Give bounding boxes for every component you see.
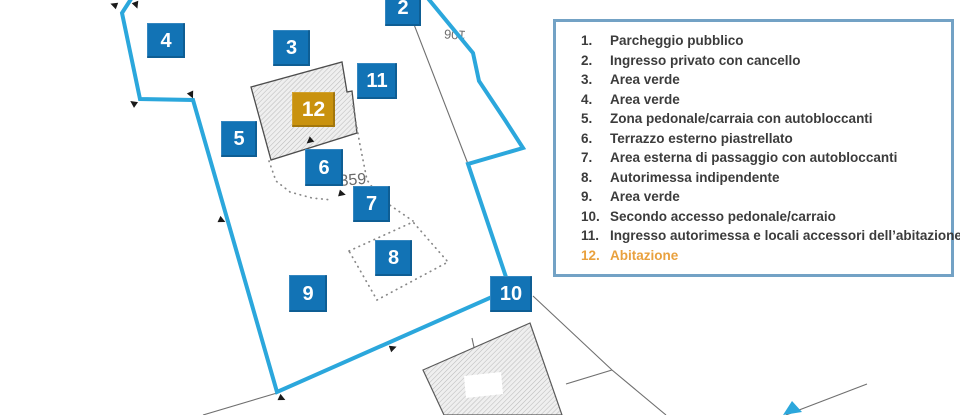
- property-boundary-line: [122, 0, 523, 392]
- legend-panel: 1.Parcheggio pubblico2.Ingresso privato …: [553, 19, 954, 277]
- legend-item-8: 8.Autorimessa indipendente: [556, 168, 951, 188]
- map-marker-7: 7: [353, 186, 390, 222]
- map-marker-11: 11: [357, 63, 397, 99]
- blue-arrow-icon: [783, 401, 802, 415]
- legend-item-7: 7.Area esterna di passaggio con autobloc…: [556, 148, 951, 168]
- map-marker-12: 12: [292, 92, 335, 127]
- map-marker-10: 10: [490, 276, 532, 312]
- map-marker-5: 5: [221, 121, 257, 157]
- legend-item-3: 3.Area verde: [556, 70, 951, 90]
- legend-item-number: 10.: [581, 207, 610, 227]
- legend-item-label: Area verde: [610, 187, 680, 207]
- legend-item-label: Secondo accesso pedonale/carraio: [610, 207, 836, 227]
- legend-item-number: 12.: [581, 246, 610, 266]
- legend-item-label: Autorimessa indipendente: [610, 168, 780, 188]
- legend-item-number: 2.: [581, 51, 610, 71]
- site-plan-figure: 359 106 234567891011121.Parcheggio pubbl…: [0, 0, 960, 415]
- legend-item-label: Zona pedonale/carraia con autobloccanti: [610, 109, 873, 129]
- legend-item-label: Parcheggio pubblico: [610, 31, 744, 51]
- legend-item-number: 11.: [581, 226, 610, 246]
- legend-item-label: Area esterna di passaggio con autoblocca…: [610, 148, 897, 168]
- legend-item-label: Abitazione: [610, 246, 678, 266]
- map-marker-6: 6: [305, 149, 343, 186]
- legend-item-number: 1.: [581, 31, 610, 51]
- legend-item-6: 6.Terrazzo esterno piastrellato: [556, 129, 951, 149]
- legend-item-number: 7.: [581, 148, 610, 168]
- legend-item-10: 10.Secondo accesso pedonale/carraio: [556, 207, 951, 227]
- legend-item-label: Terrazzo esterno piastrellato: [610, 129, 793, 149]
- map-marker-8: 8: [375, 240, 412, 276]
- building-neighbor-label-patch: [464, 372, 503, 398]
- legend-item-number: 6.: [581, 129, 610, 149]
- map-marker-4: 4: [147, 23, 185, 58]
- legend-item-label: Ingresso autorimessa e locali accessori …: [610, 226, 960, 246]
- map-marker-2: 2: [385, 0, 421, 26]
- legend-item-number: 3.: [581, 70, 610, 90]
- legend-item-number: 9.: [581, 187, 610, 207]
- legend-item-2: 2.Ingresso privato con cancello: [556, 51, 951, 71]
- legend-item-label: Area verde: [610, 70, 680, 90]
- legend-item-number: 5.: [581, 109, 610, 129]
- legend-item-11: 11.Ingresso autorimessa e locali accesso…: [556, 226, 951, 246]
- legend-item-number: 4.: [581, 90, 610, 110]
- legend-item-number: 8.: [581, 168, 610, 188]
- map-marker-9: 9: [289, 275, 327, 312]
- legend-item-1: 1.Parcheggio pubblico: [556, 31, 951, 51]
- map-marker-3: 3: [273, 30, 310, 66]
- legend-item-5: 5.Zona pedonale/carraia con autobloccant…: [556, 109, 951, 129]
- building-neighbor: [423, 323, 562, 415]
- legend-item-4: 4.Area verde: [556, 90, 951, 110]
- legend-item-label: Ingresso privato con cancello: [610, 51, 801, 71]
- legend-item-12: 12.Abitazione: [556, 246, 951, 266]
- legend-item-label: Area verde: [610, 90, 680, 110]
- legend-item-9: 9.Area verde: [556, 187, 951, 207]
